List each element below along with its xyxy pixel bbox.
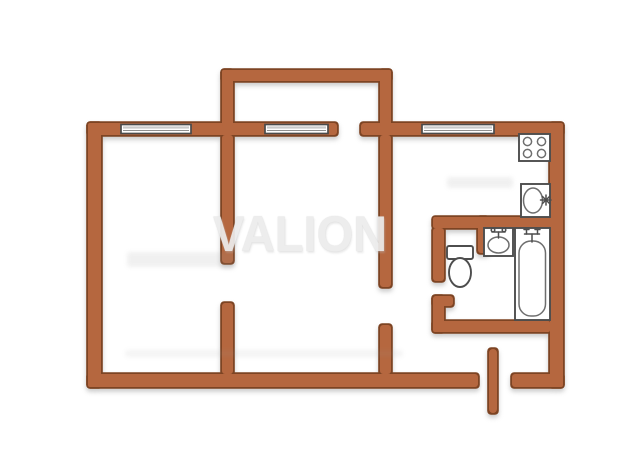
interior-wall-left-lower <box>222 303 233 374</box>
window-frame <box>121 125 191 134</box>
window-kitchen <box>422 125 494 134</box>
window-left-room <box>121 125 191 134</box>
stove-icon <box>519 134 550 161</box>
window-frame <box>422 125 494 134</box>
window-balcony-room <box>265 125 328 134</box>
bathroom-wall-bottom <box>433 321 550 332</box>
wall-bottom-right-segment <box>512 374 563 387</box>
toilet-icon <box>447 246 473 287</box>
bathtub-icon <box>515 228 550 320</box>
washbasin-icon <box>484 228 513 256</box>
kitchen-sink-icon <box>521 184 551 217</box>
floor-plan: VALION <box>0 0 630 475</box>
balcony-wall-right <box>380 70 391 126</box>
wall-right <box>550 123 563 387</box>
bathroom-wall-left-upper <box>433 228 444 281</box>
balcony-wall-top <box>222 70 391 81</box>
window-frame <box>265 125 328 134</box>
wall-bottom-left-segment <box>88 374 478 387</box>
watermark: VALION <box>213 209 420 259</box>
wall-left <box>88 123 101 387</box>
erased-label-smudge <box>125 350 403 357</box>
erased-label-smudge <box>447 177 513 188</box>
entrance-door-leaf <box>489 349 497 413</box>
bathroom-door-jamb <box>433 296 453 306</box>
bathroom-wall-top <box>433 217 550 228</box>
kitchen-sink-faucet <box>541 195 552 205</box>
